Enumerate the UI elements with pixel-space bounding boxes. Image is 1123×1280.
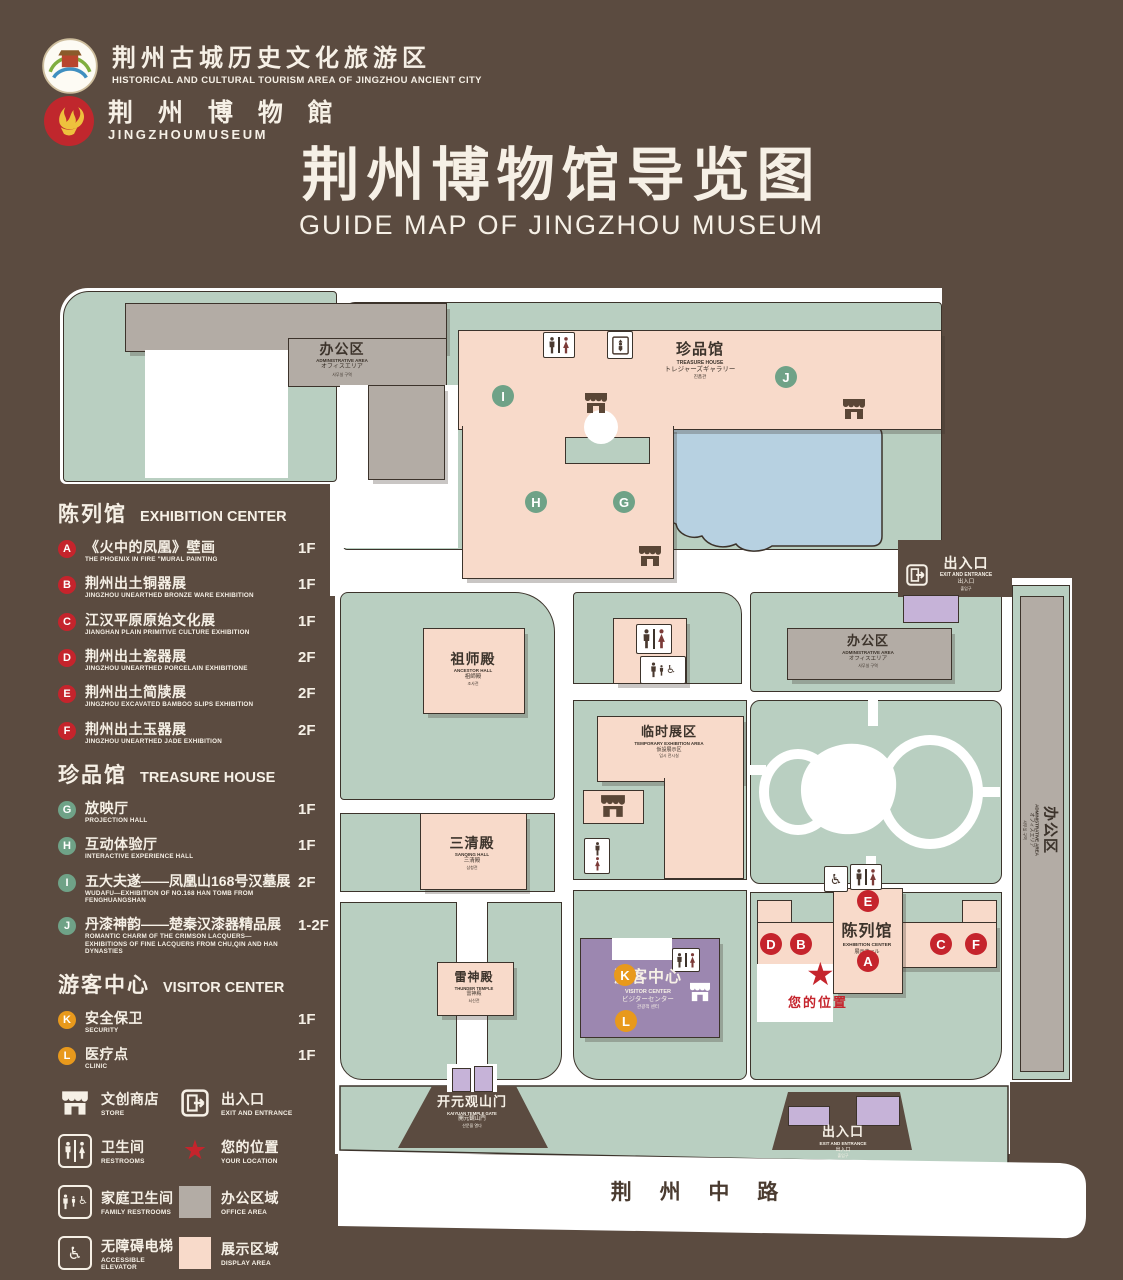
marker-k: K: [614, 964, 636, 986]
temporary-exhibition-label: 临时展区 TEMPORARY EXHIBITION AREA 仮設展示区 임시 …: [634, 724, 703, 758]
tourism-area-logo-icon: [42, 38, 98, 94]
marker-j: J: [775, 366, 797, 388]
legend-marker-d: D: [58, 649, 76, 667]
visitor-center-notch: [612, 938, 672, 960]
marker-h: H: [525, 491, 547, 513]
elevator-icon: [607, 331, 633, 359]
facility-accessible-elevator: ♿ 无障碍电梯ACCESSIBLE ELEVATOR: [58, 1236, 178, 1271]
marker-g: G: [613, 491, 635, 513]
thunder-temple-label: 雷神殿 THUNDER TEMPLE 雷神殿 뇌신전: [454, 970, 493, 1003]
legend-item-d: D 荆州出土瓷器展JINGZHOU UNEARTHED PORCELAIN EX…: [58, 648, 334, 672]
legend-item-c: C 江汉平原原始文化展JIANGHAN PLAIN PRIMITIVE CULT…: [58, 612, 334, 636]
your-location-star-icon: ★: [806, 958, 835, 990]
restroom-icon: [850, 864, 882, 890]
floor-c: 1F: [294, 613, 334, 630]
floor-a: 1F: [294, 540, 334, 557]
facility-family-restrooms: ♿ 家庭卫生间FAMILY RESTROOMS: [58, 1185, 178, 1219]
family-restroom-icon: ♿: [58, 1185, 92, 1219]
legend-marker-e: E: [58, 685, 76, 703]
tourism-area-logo-row: 荆州古城历史文化旅游区 HISTORICAL AND CULTURAL TOUR…: [42, 38, 482, 94]
office-area-swatch: [178, 1186, 212, 1218]
road-name: 荆 州 中 路: [611, 1176, 790, 1206]
legend-marker-k: K: [58, 1011, 76, 1029]
store-icon: [842, 398, 866, 420]
legend-section-exhibition: 陈列馆 EXHIBITION CENTER: [58, 498, 334, 528]
admin-nw-label: 办公区 ADMINISTRATIVE AREA オフィスエリア 사무실 구역: [316, 340, 368, 377]
legend-item-b: B 荆州出土铜器展JINGZHOU UNEARTHED BRONZE WARE …: [58, 575, 334, 599]
legend-facilities: 文创商店STORE 出入口EXIT AND ENTRANCE 卫生间RESTRO…: [58, 1089, 334, 1280]
guide-map-poster: 荆州古城历史文化旅游区 HISTORICAL AND CULTURAL TOUR…: [0, 0, 1123, 1280]
facility-store: 文创商店STORE: [58, 1089, 178, 1117]
legend-marker-i: I: [58, 874, 76, 892]
legend-marker-g: G: [58, 801, 76, 819]
floor-i: 2F: [294, 874, 334, 891]
facility-office-area: 办公区域OFFICE AREA: [178, 1185, 334, 1219]
restroom-icon: [636, 624, 672, 654]
your-location-star-icon: ★: [178, 1137, 212, 1164]
facility-restrooms: 卫生间RESTROOMS: [58, 1134, 178, 1168]
marker-e: E: [857, 890, 879, 912]
store-icon: [584, 392, 608, 414]
legend-section-title-en: VISITOR CENTER: [163, 980, 284, 996]
marker-d: D: [760, 933, 782, 955]
admin-nw-building-arm: [368, 385, 445, 480]
exit-icon: [906, 564, 928, 586]
tourism-area-title: 荆州古城历史文化旅游区: [112, 46, 482, 72]
northeast-exit-label: 出入口 EXIT AND ENTRANCE 出入口 출입구: [940, 554, 992, 591]
southeast-exit-label: 出入口 EXIT AND ENTRANCE 出入口 출입구: [819, 1124, 866, 1158]
tourism-area-logo-text: 荆州古城历史文化旅游区 HISTORICAL AND CULTURAL TOUR…: [112, 46, 482, 85]
treasure-house-curve-notch: [584, 410, 618, 444]
legend-section-title-en: EXHIBITION CENTER: [140, 509, 287, 525]
store-icon: [600, 794, 626, 818]
ancestor-hall-label: 祖师殿 ANCESTOR HALL 祖師殿 조사전: [451, 650, 496, 686]
marker-i: I: [492, 385, 514, 407]
sanqing-hall-label: 三清殿 SANQING HALL 三清殿 삼청전: [450, 834, 495, 870]
southeast-gate-right: [856, 1096, 900, 1126]
marker-c: C: [930, 933, 952, 955]
floor-b: 1F: [294, 576, 334, 593]
legend-marker-a: A: [58, 540, 76, 558]
museum-logo-title: 荆 州 博 物 館: [108, 100, 342, 126]
marker-l: L: [615, 1010, 637, 1032]
facility-display-area: 展示区域DISPLAY AREA: [178, 1236, 334, 1271]
southeast-gate-left: [788, 1106, 830, 1126]
legend-panel: 陈列馆 EXHIBITION CENTER A 《火中的凤凰》壁画THE PHO…: [58, 498, 334, 1280]
legend-section-title-en: TREASURE HOUSE: [140, 770, 275, 786]
store-icon: [58, 1090, 92, 1116]
restroom-icon: [58, 1134, 92, 1168]
green-block-garden: [750, 700, 1002, 884]
floor-g: 1F: [294, 801, 334, 818]
admin-east-label: 办公区 ADMINISTRATIVE AREA オフィスエリア 사무실 구역: [842, 633, 894, 668]
floor-e: 2F: [294, 685, 334, 702]
your-location-label: 您的位置: [788, 992, 848, 1011]
admin-nw-courtyard: [145, 350, 288, 478]
facility-exit: 出入口EXIT AND ENTRANCE: [178, 1089, 334, 1117]
legend-section-treasure: 珍品馆 TREASURE HOUSE: [58, 759, 334, 789]
southwest-gate-right: [474, 1066, 493, 1092]
floor-j: 1-2F: [294, 917, 334, 934]
floor-f: 2F: [294, 722, 334, 739]
legend-section-visitor: 游客中心 VISITOR CENTER: [58, 969, 334, 999]
legend-section-title-zh: 陈列馆: [58, 498, 127, 528]
legend-marker-j: J: [58, 917, 76, 935]
legend-marker-h: H: [58, 837, 76, 855]
legend-section-title-zh: 珍品馆: [58, 759, 127, 789]
floor-h: 1F: [294, 837, 334, 854]
southwest-gate-left: [452, 1068, 471, 1092]
legend-section-title-zh: 游客中心: [58, 969, 150, 999]
facility-your-location: ★ 您的位置YOUR LOCATION: [178, 1134, 334, 1168]
page-title: 荆州博物馆导览图: [0, 128, 1123, 212]
kaiyuan-gate-label: 开元观山门 KAIYUAN TEMPLE GATE 開元観山門 산문을 열다: [437, 1094, 507, 1129]
marker-f: F: [965, 933, 987, 955]
floor-k: 1F: [294, 1011, 334, 1028]
temporary-exhibition-extension: [664, 778, 744, 879]
accessible-elevator-icon: ♿: [58, 1236, 92, 1270]
restroom-icon: [584, 838, 610, 874]
tourism-area-subtitle: HISTORICAL AND CULTURAL TOURISM AREA OF …: [112, 75, 482, 86]
legend-item-e: E 荆州出土简牍展JINGZHOU EXCAVATED BAMBOO SLIPS…: [58, 684, 334, 708]
display-area-swatch: [178, 1237, 212, 1269]
store-icon: [638, 545, 662, 567]
marker-a: A: [857, 950, 879, 972]
legend-marker-c: C: [58, 613, 76, 631]
legend-item-h: H 互动体验厅INTERACTIVE EXPERIENCE HALL 1F: [58, 836, 334, 860]
treasure-house-label: 珍品馆 TREASURE HOUSE トレジャーズギャラリー 진품관: [665, 340, 736, 380]
legend-item-j: J 丹漆神韵——楚秦汉漆器精品展ROMANTIC CHARM OF THE CR…: [58, 916, 334, 955]
floor-d: 2F: [294, 649, 334, 666]
legend-item-i: I 五大夫遂——凤凰山168号汉墓展WUDAFU—EXHIBITION OF N…: [58, 873, 334, 905]
legend-item-a: A 《火中的凤凰》壁画THE PHOENIX IN FIRE "MURAL PA…: [58, 539, 334, 563]
legend-item-k: K 安全保卫SECURITY 1F: [58, 1010, 334, 1034]
legend-item-l: L 医疗点CLINIC 1F: [58, 1046, 334, 1070]
floor-l: 1F: [294, 1047, 334, 1064]
admin-east-strip-label: 办公区 ADMINISTRATIVE AREA オフィスエリア 사무실 구역: [1022, 804, 1059, 856]
legend-marker-b: B: [58, 576, 76, 594]
accessible-elevator-icon: ♿: [824, 866, 848, 892]
northeast-gate: [903, 595, 959, 623]
legend-item-f: F 荆州出土玉器展JINGZHOU UNEARTHED JADE EXHIBIT…: [58, 721, 334, 745]
exit-icon: [178, 1089, 212, 1117]
marker-b: B: [790, 933, 812, 955]
family-restroom-icon: ♿: [640, 656, 686, 684]
restroom-icon: [543, 332, 575, 358]
page-subtitle: GUIDE MAP OF JINGZHOU MUSEUM: [0, 210, 1123, 241]
store-icon: [688, 982, 712, 1002]
legend-marker-l: L: [58, 1047, 76, 1065]
legend-item-g: G 放映厅PROJECTION HALL 1F: [58, 800, 334, 824]
legend-marker-f: F: [58, 722, 76, 740]
